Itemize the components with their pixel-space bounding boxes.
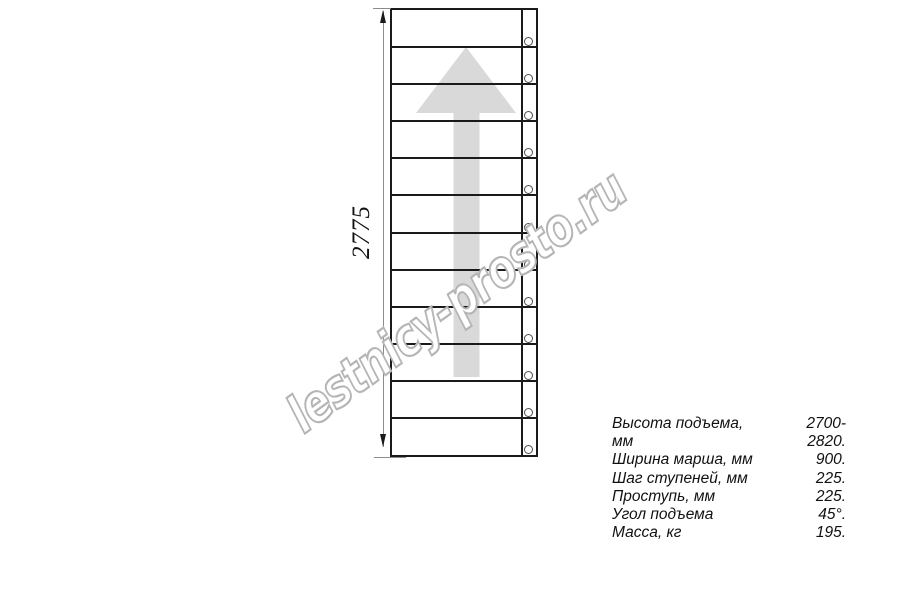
fastener-screw-icon — [524, 37, 533, 46]
staircase-drawing-page: 2775 lestnicy-prosto.ru Высота подъема, … — [0, 0, 900, 600]
fastener-screw-icon — [524, 148, 533, 157]
tread-edge-line — [392, 120, 536, 122]
spec-value: 45°. — [808, 506, 846, 524]
spec-label: Угол подъема — [612, 506, 713, 524]
dimension-arrow-up-icon — [380, 10, 386, 23]
spec-row: Высота подъема, мм2700-2820. — [612, 415, 846, 451]
fastener-screw-icon — [524, 74, 533, 83]
spec-label: Проступь, мм — [612, 488, 715, 506]
tread-edge-line — [392, 83, 536, 85]
spec-label: Ширина марша, мм — [612, 451, 753, 469]
fastener-screw-icon — [524, 185, 533, 194]
tread-edge-line — [392, 417, 536, 419]
spec-row: Масса, кг195. — [612, 524, 846, 542]
tread-edge-line — [392, 46, 536, 48]
spec-value: 195. — [806, 524, 846, 542]
dimension-value-label: 2775 — [348, 205, 376, 259]
dimension-extension-line-top — [373, 8, 391, 9]
spec-row: Угол подъема45°. — [612, 506, 846, 524]
tread-edge-line — [392, 380, 536, 382]
spec-value: 900. — [806, 451, 846, 469]
fastener-screw-icon — [524, 445, 533, 454]
spec-value: 225. — [806, 470, 846, 488]
fastener-screw-icon — [524, 297, 533, 306]
fastener-screw-icon — [524, 408, 533, 417]
specs-table: Высота подъема, мм2700-2820.Ширина марша… — [612, 415, 846, 542]
spec-value: 225. — [806, 488, 846, 506]
spec-row: Ширина марша, мм900. — [612, 451, 846, 469]
fastener-screw-icon — [524, 334, 533, 343]
spec-row: Шаг ступеней, мм225. — [612, 470, 846, 488]
fastener-screw-icon — [524, 371, 533, 380]
spec-label: Шаг ступеней, мм — [612, 470, 748, 488]
tread-edge-line — [392, 194, 536, 196]
tread-edge-line — [392, 157, 536, 159]
spec-label: Высота подъема, мм — [612, 415, 761, 451]
dimension-arrow-down-icon — [380, 434, 386, 447]
spec-value: 2700-2820. — [761, 415, 846, 451]
spec-label: Масса, кг — [612, 524, 681, 542]
fastener-screw-icon — [524, 111, 533, 120]
spec-row: Проступь, мм225. — [612, 488, 846, 506]
dimension-extension-line-bottom — [374, 457, 406, 458]
